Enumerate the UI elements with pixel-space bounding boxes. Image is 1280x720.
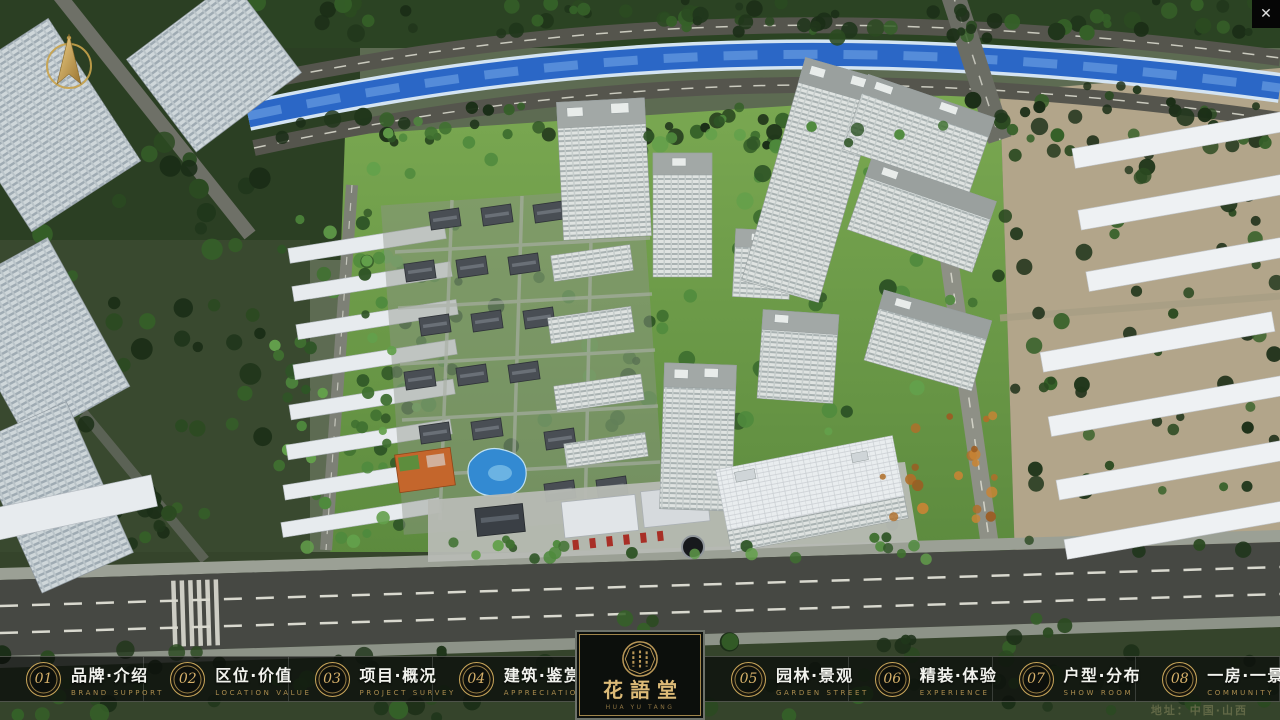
menu-label-en: PROJECT SURVEY: [360, 689, 432, 697]
menu-label-zh: 品牌·介绍: [71, 662, 143, 686]
menu-item-05[interactable]: 05园林·景观GARDEN STREET: [705, 657, 849, 701]
project-logo-subtitle: HUA YU TANG: [606, 704, 675, 711]
menu-label-zh: 区位·价值: [215, 662, 287, 686]
menu-label-en: COMMUNITY: [1207, 689, 1279, 697]
menu-number-badge: 02: [170, 662, 205, 697]
menu-number-badge: 04: [459, 662, 494, 697]
menu-label-en: GARDEN STREET: [776, 689, 848, 697]
menu-number: 03: [323, 671, 341, 687]
menu-number-badge: 06: [875, 662, 910, 697]
menu-number: 01: [35, 671, 53, 687]
menu-number-badge: 05: [731, 662, 766, 697]
clubhouse-orange: [395, 447, 456, 492]
menu-label-en: EXPERIENCE: [920, 689, 992, 697]
menu-item-06[interactable]: 06精装·体验EXPERIENCE: [849, 657, 993, 701]
menu-label-en: SHOW ROOM: [1064, 689, 1136, 697]
menu-label-zh: 一房·一景: [1207, 662, 1279, 686]
menu-item-04[interactable]: 04建筑·鉴赏APPRECIATION: [433, 657, 576, 701]
menu-label-zh: 园林·景观: [776, 662, 848, 686]
menu-item-02[interactable]: 02区位·价值LOCATION VALUE: [144, 657, 288, 701]
menu-item-07[interactable]: 07户型·分布SHOW ROOM: [993, 657, 1137, 701]
menu-label-en: APPRECIATION: [504, 689, 576, 697]
menu-label-en: LOCATION VALUE: [215, 689, 287, 697]
compass-north-icon: [40, 28, 98, 98]
seal-emblem-icon: [621, 640, 659, 678]
logo-frame: 花語堂 HUA YU TANG: [579, 634, 701, 716]
menu-label-zh: 项目·概况: [360, 662, 432, 686]
menu-item-03[interactable]: 03项目·概况PROJECT SURVEY: [289, 657, 433, 701]
menu-label-en: BRAND SUPPORT: [71, 689, 143, 697]
menu-label-zh: 户型·分布: [1064, 662, 1136, 686]
bottom-menu-left: 01品牌·介绍BRAND SUPPORT02区位·价值LOCATION VALU…: [0, 656, 576, 702]
aerial-masterplan-render: [0, 0, 1280, 720]
menu-number-badge: 01: [26, 662, 61, 697]
entrance-gatehouse: [475, 504, 526, 537]
menu-number-badge: 03: [315, 662, 350, 697]
bottom-menu-right: 05园林·景观GARDEN STREET06精装·体验EXPERIENCE07户…: [705, 656, 1280, 702]
menu-number-badge: 07: [1019, 662, 1054, 697]
menu-number: 08: [1171, 671, 1189, 687]
menu-number: 04: [467, 671, 485, 687]
project-address: 地址：中国·山西: [1151, 702, 1248, 718]
menu-label-zh: 建筑·鉴赏: [504, 662, 576, 686]
menu-number: 06: [883, 671, 901, 687]
menu-number-badge: 08: [1162, 662, 1197, 697]
menu-number: 07: [1027, 671, 1045, 687]
project-logo-plaque[interactable]: 花語堂 HUA YU TANG: [575, 630, 705, 720]
menu-label-zh: 精装·体验: [920, 662, 992, 686]
close-button[interactable]: ✕: [1252, 0, 1280, 28]
presentation-window: ✕ 01品牌·介绍BRAND SUPPORT02区位·价值LOCATION VA…: [0, 0, 1280, 720]
menu-item-01[interactable]: 01品牌·介绍BRAND SUPPORT: [0, 657, 144, 701]
project-logo-title: 花語堂: [596, 680, 684, 700]
menu-item-08[interactable]: 08一房·一景COMMUNITY: [1136, 657, 1280, 701]
menu-number: 05: [740, 671, 758, 687]
menu-number: 02: [179, 671, 197, 687]
